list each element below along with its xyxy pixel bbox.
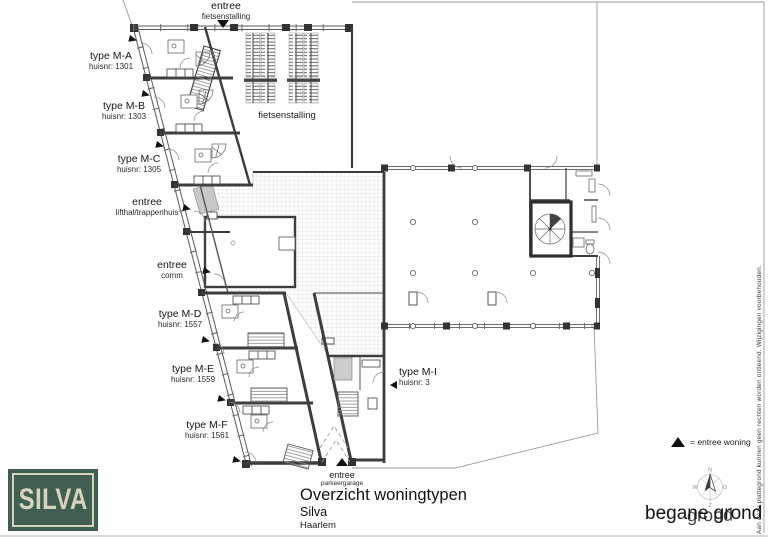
unit-label-mi: type M-I huisnr: 3 xyxy=(399,366,437,388)
legend: = entree woning xyxy=(671,437,751,447)
right-hall xyxy=(381,156,600,330)
silva-logo-frame: SILVA xyxy=(12,473,94,527)
compass-icon: N O Z W xyxy=(692,466,728,508)
project-city: Haarlem xyxy=(300,520,467,532)
compass-north: N xyxy=(708,468,712,474)
spiral-stair-icon xyxy=(535,214,565,244)
entrance-marker-mi-icon xyxy=(390,381,397,389)
unit-mi-interior xyxy=(334,356,384,416)
entrance-marker-me-icon xyxy=(217,395,226,404)
compass-east: O xyxy=(723,485,728,491)
entrance-marker-parkeergarage-icon xyxy=(336,458,348,466)
unit-label-md: type M-D huisnr: 1557 xyxy=(158,308,202,330)
page-title: Overzicht woningtypen xyxy=(300,486,467,505)
unit-label-me: type M-E huisnr: 1559 xyxy=(171,363,215,385)
bike-racks xyxy=(244,33,320,103)
entrance-label-fietsenstalling: entree fietsenstalling xyxy=(202,0,250,22)
silva-logo: SILVA xyxy=(8,469,98,531)
unit-label-mc: type M-C huisnr: 1305 xyxy=(117,153,161,175)
silva-logo-text: SILVA xyxy=(18,483,87,517)
top-facade-wall xyxy=(133,24,353,32)
compass-rose: N O Z W xyxy=(692,466,728,513)
title-block: Overzicht woningtypen Silva Haarlem xyxy=(300,486,467,532)
unit-label-ma: type M-A huisnr: 1301 xyxy=(89,50,133,72)
subroom xyxy=(530,156,610,264)
unit-label-mf: type M-F huisnr: 1561 xyxy=(185,419,229,441)
entrance-label-lifthal: entree lifthal/trappenhuis xyxy=(116,196,179,218)
compass-west: W xyxy=(692,485,698,491)
entrance-marker-lifthal-icon xyxy=(182,204,191,213)
drawing-sheet: entree fietsenstalling type M-A huisnr: … xyxy=(0,0,768,537)
entrance-label-comm: entree comm xyxy=(157,259,187,281)
disclaimer-text: Aan deze plattegrond kunnen geen rechten… xyxy=(756,254,763,534)
unit-label-mb: type M-B huisnr: 1303 xyxy=(102,100,146,122)
entrance-marker-md-icon xyxy=(201,336,210,345)
entrance-marker-mf-icon xyxy=(232,456,241,465)
entree-woning-triangle-icon xyxy=(671,437,685,447)
floor-plan xyxy=(0,0,768,537)
room-label-fietsenstalling: fietsenstalling xyxy=(258,110,316,121)
project-name: Silva xyxy=(300,505,467,520)
legend-text: = entree woning xyxy=(690,437,751,447)
compass-south: Z xyxy=(708,503,712,508)
